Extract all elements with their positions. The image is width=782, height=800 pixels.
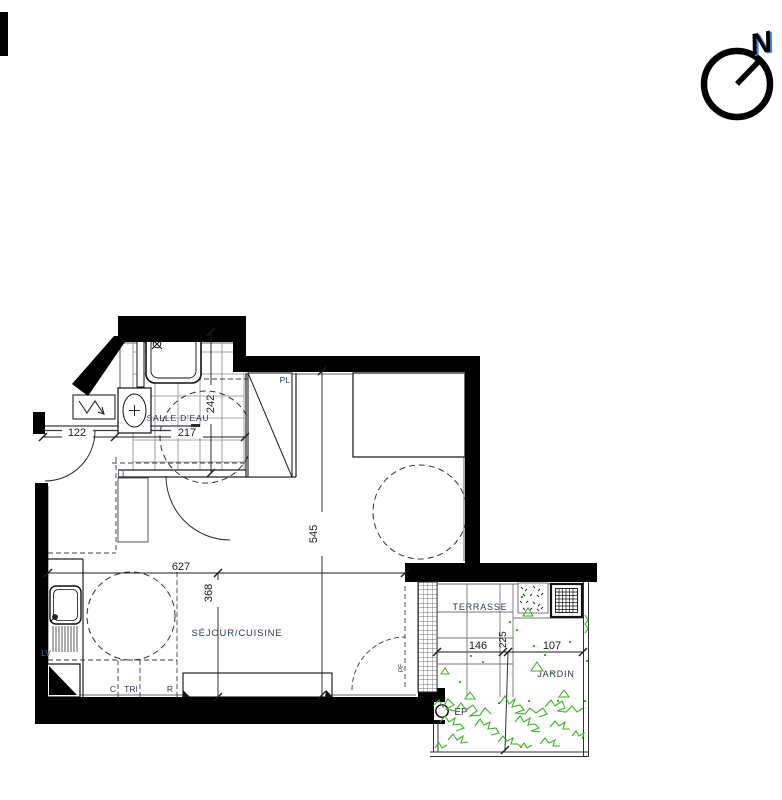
electrical-panel	[73, 395, 115, 419]
dim-bathroom-depth: 242	[205, 395, 217, 413]
dim-living-height: 545	[308, 525, 320, 543]
fixture-tags: PL LL LV C TRI R PF	[41, 375, 405, 694]
bed	[353, 373, 465, 457]
dim-entry-width: 122	[68, 427, 86, 439]
sorting-label: TRI	[124, 684, 138, 694]
washer-niche	[118, 478, 148, 542]
closet-label: PL	[280, 375, 291, 385]
dim-bathroom-width: 217	[178, 427, 196, 439]
dim-terrace-width: 146	[469, 640, 487, 652]
sideboard	[183, 673, 332, 697]
washer-label: LL	[117, 469, 127, 479]
floor-plan-drawing: EP 122 217 242 545 627 368 146 225 107	[0, 0, 782, 800]
dim-kitchen-depth: 368	[203, 584, 215, 602]
compass: N N	[704, 25, 778, 117]
bathroom-door-arc	[166, 476, 230, 540]
cooker-label: C	[110, 684, 116, 694]
grate	[551, 584, 582, 617]
room-terrace-label: TERRASSE	[453, 602, 508, 612]
floor-plan-page: EP 122 217 242 545 627 368 146 225 107	[0, 0, 782, 800]
room-bathroom-label: SALLE D'EAU	[147, 413, 210, 423]
page-edge-mark	[0, 12, 8, 56]
dim-living-width: 627	[172, 561, 190, 573]
fridge-label: R	[167, 684, 173, 694]
garden-plant-symbols	[441, 608, 569, 699]
dishwasher-label: LV	[41, 648, 51, 658]
dim-garden-width: 107	[543, 640, 561, 652]
room-living-label: SÉJOUR/CUISINE	[192, 628, 283, 639]
glazed-wall	[418, 582, 437, 692]
french-door-label: PF	[398, 664, 405, 672]
rainwater-icon	[436, 705, 448, 717]
door-arcs	[45, 431, 230, 540]
garden-vegetation	[433, 615, 588, 748]
dim-terrace-depth: 225	[498, 631, 509, 648]
drainer-lines	[53, 626, 77, 652]
